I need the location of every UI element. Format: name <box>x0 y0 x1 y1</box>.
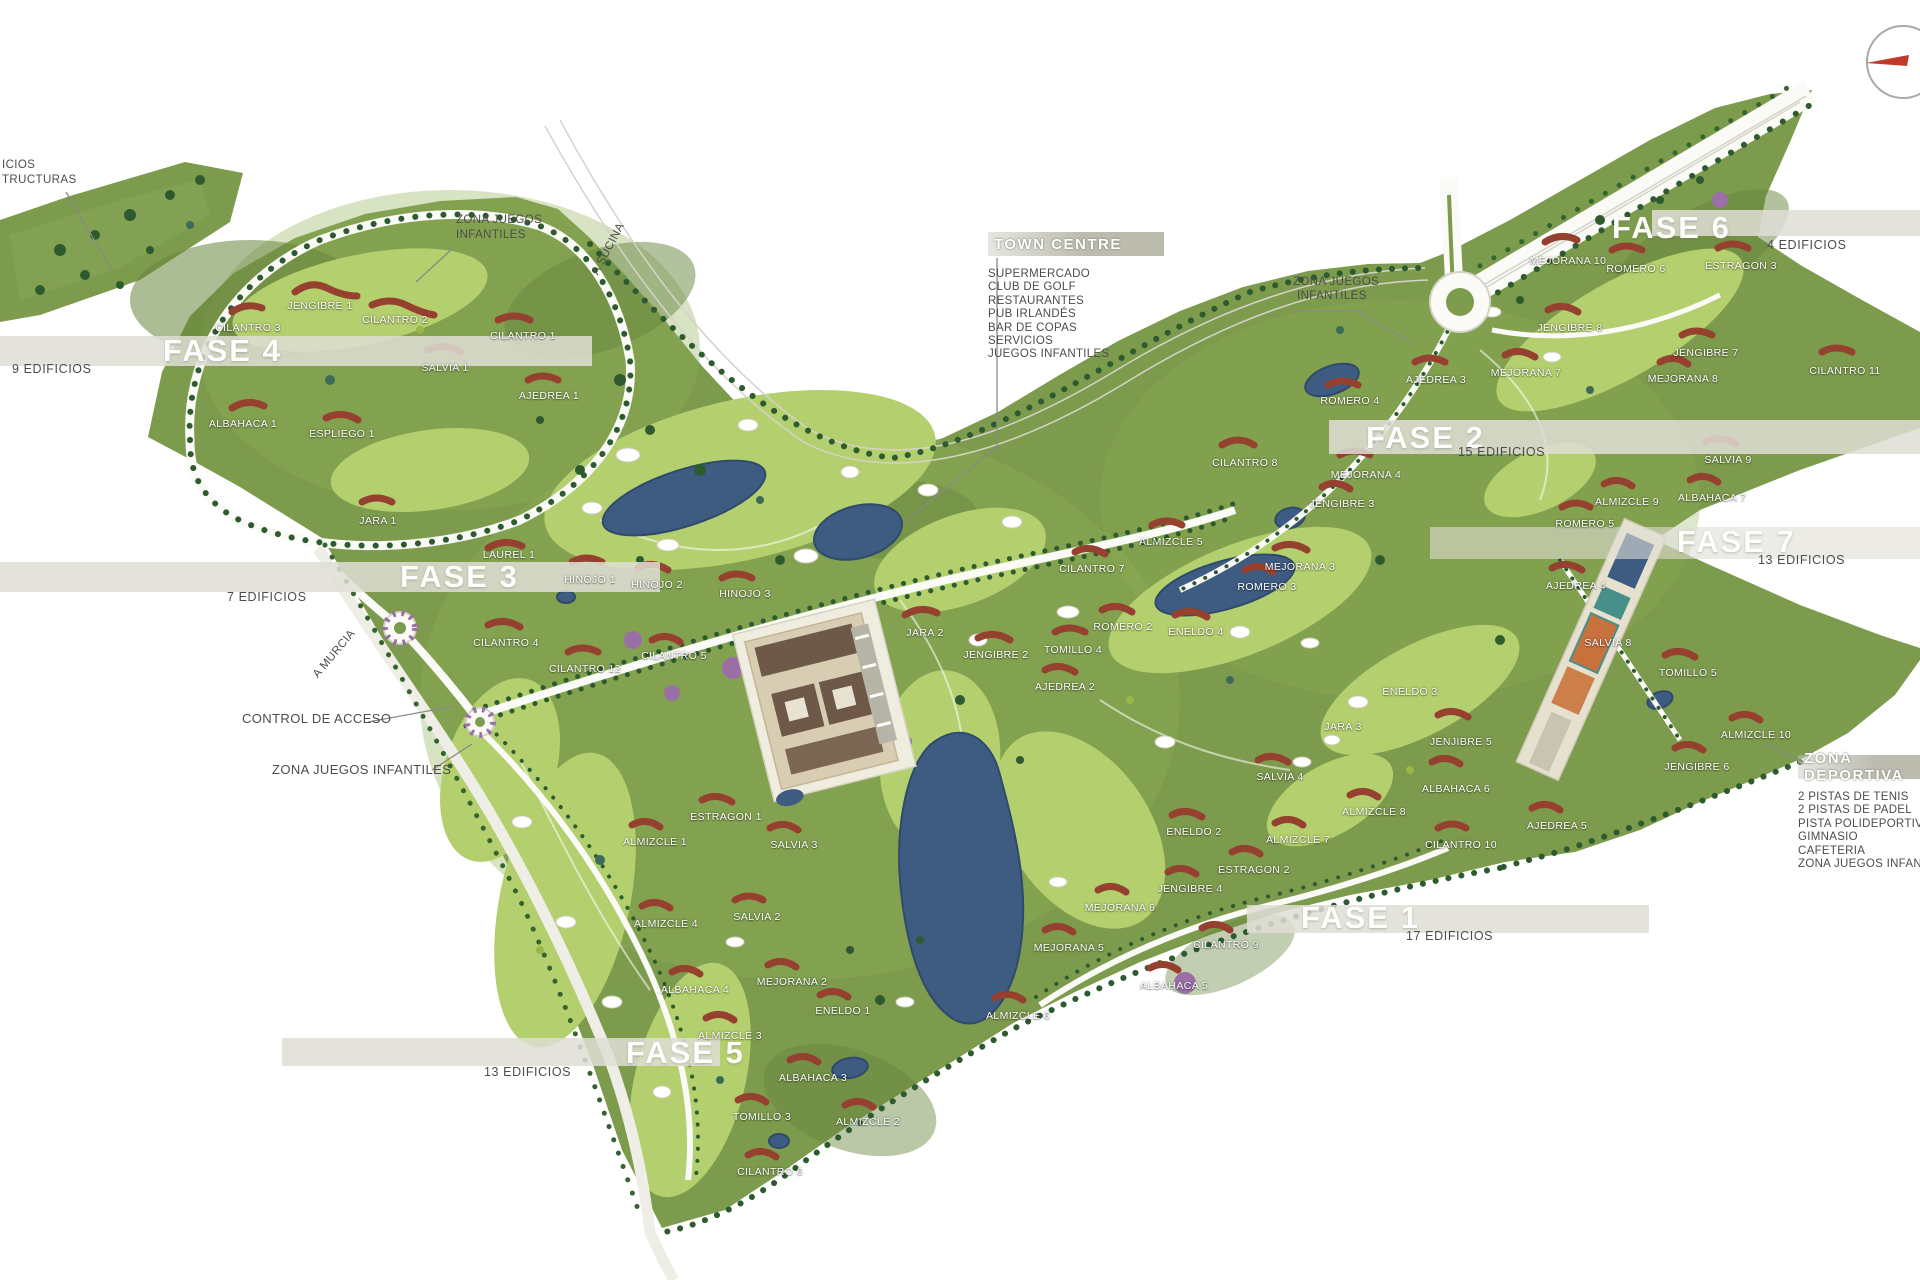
street-label: CILANTRO 12 <box>549 663 621 675</box>
street-label: ESTRAGON 2 <box>1218 864 1290 876</box>
street-label: ALMIZCLE 10 <box>1721 729 1791 741</box>
street-label: JENGIBRE 2 <box>963 649 1028 661</box>
street-label: MEJORANA 5 <box>1034 942 1105 954</box>
street-label: ALBAHACA 5 <box>1140 980 1208 992</box>
fase5-edificios-count: 13 EDIFICIOS <box>484 1065 571 1079</box>
map-annotation: INFANTILES <box>456 229 526 241</box>
street-label: ALMIZCLE 9 <box>1595 496 1659 508</box>
street-label: JENGIBRE 4 <box>1157 883 1222 895</box>
zona-deportiva-title: ZONA DEPORTIVA <box>1798 755 1920 779</box>
street-label: JARA 1 <box>359 515 396 527</box>
street-label: CILANTRO 1 <box>490 330 556 342</box>
street-label: AJEDREA 2 <box>1035 681 1095 693</box>
street-label: HINOJO 1 <box>564 574 616 586</box>
street-label: SALVIA 9 <box>1704 454 1751 466</box>
map-annotation: ZONA JUEGOS <box>456 214 542 226</box>
street-label: ALMIZCLE 6 <box>986 1010 1050 1022</box>
street-label: ALBAHACA 1 <box>209 418 277 430</box>
map-annotation: ICIOS <box>2 159 35 171</box>
street-label: ROMERO 6 <box>1606 263 1665 275</box>
street-label: SALVIA 3 <box>770 839 817 851</box>
legend-item: RESTAURANTES <box>988 295 1164 308</box>
fase4-label: FASE 4 <box>163 333 282 369</box>
street-label: SALVIA 8 <box>1584 637 1631 649</box>
fase3-band <box>0 562 660 592</box>
fase3-edificios-count: 7 EDIFICIOS <box>227 590 307 604</box>
legend-item: ZONA JUEGOS INFANTILES <box>1798 858 1920 871</box>
zona-deportiva-items: 2 PISTAS DE TENIS2 PISTAS DE PADELPISTA … <box>1798 791 1920 871</box>
street-label: AJEDREA 4 <box>1546 580 1606 592</box>
map-annotation: ZONA JUEGOS INFANTILES <box>272 762 451 777</box>
map-annotation: CONTROL DE ACCESO <box>242 711 391 726</box>
map-annotation: ZONA JUEGOS <box>1293 276 1379 288</box>
street-label: JENGIBRE 3 <box>1309 498 1374 510</box>
street-label: CILANTRO 8 <box>1212 457 1278 469</box>
street-label: ALMIZCLE 7 <box>1266 834 1330 846</box>
street-label: ROMERO 4 <box>1320 395 1379 407</box>
fase7-edificios-count: 13 EDIFICIOS <box>1758 553 1845 567</box>
legend-item: SUPERMERCADO <box>988 268 1164 281</box>
legend-item: CLUB DE GOLF <box>988 281 1164 294</box>
map-annotation: TRUCTURAS <box>2 174 77 186</box>
resort-map <box>0 0 1920 1280</box>
fase6-label: FASE 6 <box>1612 210 1731 246</box>
street-label: AJEDREA 1 <box>519 390 579 402</box>
street-label: ESTRAGON 3 <box>1705 260 1777 272</box>
street-label: ALMIZCLE 3 <box>698 1030 762 1042</box>
legend-item: PUB IRLANDÉS <box>988 308 1164 321</box>
street-label: CILANTRO 9 <box>1193 939 1259 951</box>
street-label: ESPLIEGO 1 <box>309 428 375 440</box>
street-label: JENGIBRE 8 <box>1537 322 1602 334</box>
street-label: ROMERO 3 <box>1237 581 1296 593</box>
map-annotation: INFANTILES <box>1297 290 1367 302</box>
street-label: MEJORANA 10 <box>1530 255 1607 267</box>
street-label: JARA 2 <box>906 627 943 639</box>
street-label: MEJORANA 4 <box>1331 469 1402 481</box>
street-label: SALVIA 4 <box>1256 771 1303 783</box>
fase1-label: FASE 1 <box>1301 900 1420 936</box>
north-arrow-compass-icon <box>1866 26 1920 98</box>
street-label: HINOJO 2 <box>631 579 683 591</box>
fase2-edificios-count: 15 EDIFICIOS <box>1458 445 1545 459</box>
street-label: ALBAHACA 6 <box>1422 783 1490 795</box>
street-label: ENELDO 2 <box>1166 826 1221 838</box>
street-label: ALMIZCLE 2 <box>836 1116 900 1128</box>
street-label: ENELDO 1 <box>815 1005 870 1017</box>
street-label: CILANTRO 4 <box>473 637 539 649</box>
street-label: CILANTRO 10 <box>1425 839 1497 851</box>
street-label: ALBAHACA 7 <box>1678 492 1746 504</box>
legend-item: BAR DE COPAS <box>988 322 1164 335</box>
street-label: ALMIZCLE 8 <box>1342 806 1406 818</box>
street-label: MEJORANA 6 <box>1085 902 1156 914</box>
street-label: MEJORANA 3 <box>1265 561 1336 573</box>
street-label: JENJIBRE 5 <box>1430 736 1492 748</box>
legend-item: 2 PISTAS DE TENIS <box>1798 791 1920 804</box>
legend-item: CAFETERIA <box>1798 845 1920 858</box>
street-label: SALVIA 1 <box>421 362 468 374</box>
street-label: JARA 3 <box>1324 721 1361 733</box>
street-label: ALBAHACA 4 <box>661 984 729 996</box>
fase6-edificios-count: 4 EDIFICIOS <box>1767 238 1847 252</box>
street-label: AJEDREA 5 <box>1527 820 1587 832</box>
street-label: ESTRAGON 1 <box>690 811 762 823</box>
street-label: JENGIBRE 7 <box>1673 347 1738 359</box>
street-label: AJEDREA 3 <box>1406 374 1466 386</box>
street-label: CILANTRO 2 <box>362 314 428 326</box>
street-label: CILANTRO 7 <box>1059 563 1125 575</box>
legend-item: GIMNASIO <box>1798 831 1920 844</box>
legend-item: 2 PISTAS DE PADEL <box>1798 804 1920 817</box>
street-label: ALMIZCLE 4 <box>634 918 698 930</box>
street-label: CILANTRO 5 <box>641 650 707 662</box>
street-label: ROMERO 2 <box>1093 621 1152 633</box>
town-centre-title: TOWN CENTRE <box>988 232 1164 256</box>
street-label: ENELDO 4 <box>1168 626 1223 638</box>
street-label: MEJORANA 2 <box>757 976 828 988</box>
street-label: ALMIZCLE 5 <box>1139 536 1203 548</box>
street-label: ALMIZCLE 1 <box>623 836 687 848</box>
town-centre-items: SUPERMERCADOCLUB DE GOLFRESTAURANTESPUB … <box>988 268 1164 362</box>
zona-deportiva-legend: ZONA DEPORTIVA 2 PISTAS DE TENIS2 PISTAS… <box>1798 755 1920 871</box>
street-label: TOMILLO 5 <box>1659 667 1717 679</box>
resort-master-plan-page: { "colors":{ "terrain_green":"#7d9b4d","… <box>0 0 1920 1280</box>
legend-item: JUEGOS INFANTILES <box>988 348 1164 361</box>
street-label: MEJORANA 7 <box>1491 367 1562 379</box>
street-label: MEJORANA 8 <box>1648 373 1719 385</box>
street-label: CILANTRO 11 <box>1809 365 1880 377</box>
street-label: CILANTRO 6 <box>737 1166 803 1178</box>
street-label: JENGIBRE 6 <box>1664 761 1729 773</box>
fase7-band <box>1430 527 1920 559</box>
legend-item: PISTA POLIDEPORTIVA <box>1798 818 1920 831</box>
street-label: HINOJO 3 <box>719 588 771 600</box>
fase4-edificios-count: 9 EDIFICIOS <box>12 362 92 376</box>
street-label: JENGIBRE 1 <box>287 300 352 312</box>
street-label: ALBAHACA 3 <box>779 1072 847 1084</box>
street-label: ROMERO 5 <box>1555 518 1614 530</box>
street-label: CILANTRO 3 <box>215 322 281 334</box>
town-centre-legend: TOWN CENTRE SUPERMERCADOCLUB DE GOLFREST… <box>988 232 1164 362</box>
street-label: SALVIA 2 <box>733 911 780 923</box>
street-label: TOMILLO 4 <box>1044 644 1102 656</box>
legend-item: SERVICIOS <box>988 335 1164 348</box>
street-label: ENELDO 3 <box>1382 686 1437 698</box>
fase3-label: FASE 3 <box>400 559 519 595</box>
fase1-edificios-count: 17 EDIFICIOS <box>1406 929 1493 943</box>
street-label: LAUREL 1 <box>483 549 535 561</box>
street-label: TOMILLO 3 <box>733 1111 791 1123</box>
